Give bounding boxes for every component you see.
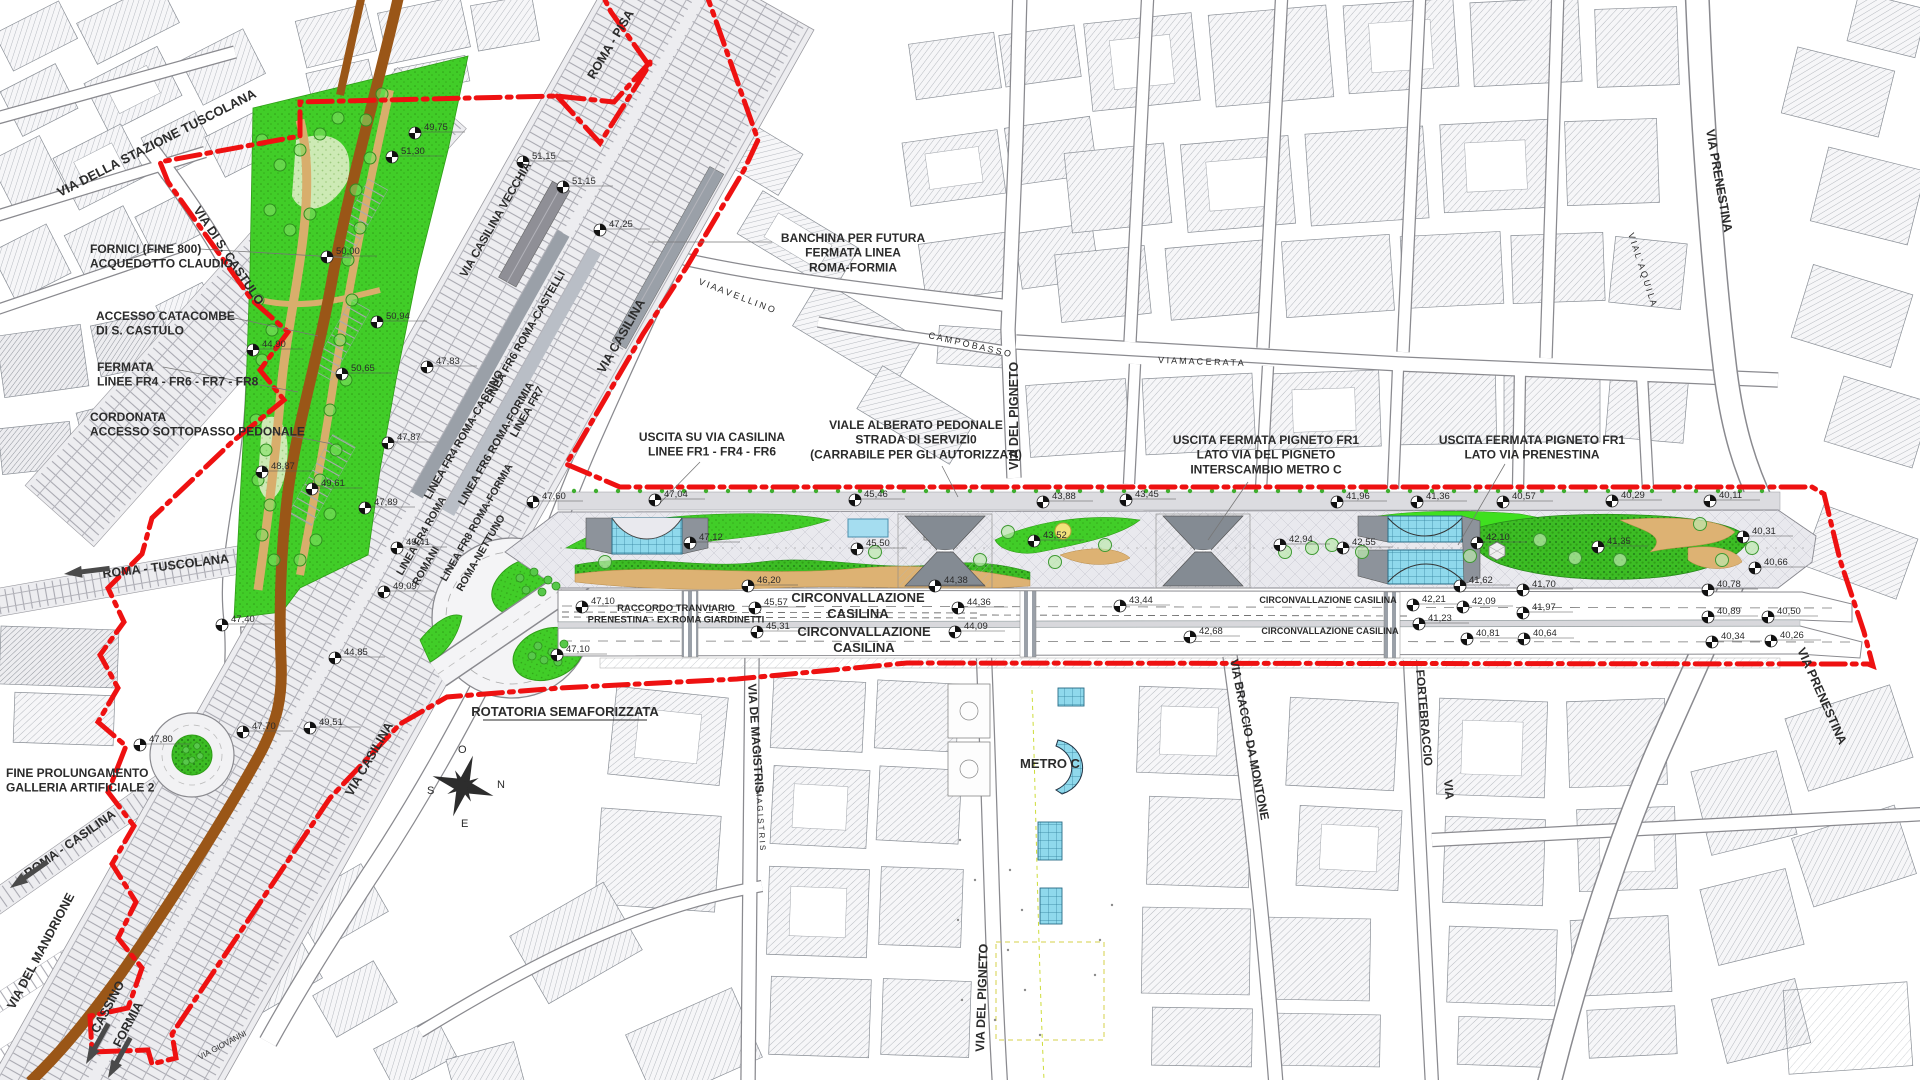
tree-icon: [332, 112, 344, 124]
elevation-value: 43,88: [1052, 491, 1076, 502]
tree-icon: [330, 444, 342, 456]
tree-icon: [274, 159, 286, 171]
city-block: [0, 324, 89, 397]
tree-icon: [350, 184, 362, 196]
elevation-value: 49,61: [321, 478, 345, 489]
tree-icon: [294, 144, 306, 156]
elevation-value: 44,38: [944, 575, 968, 586]
metro-pool-1: [1058, 688, 1084, 706]
label-metro-c: METRO C: [1020, 756, 1081, 771]
elevation-value: 40,11: [1719, 490, 1742, 501]
tree-icon: [197, 753, 203, 759]
elevation-value: 51,30: [401, 146, 425, 157]
city-block: [1141, 907, 1250, 995]
label-uscita-su-via-casilina: USCITA SU VIA CASILINALINEE FR1 - FR4 - …: [639, 430, 786, 459]
elevation-value: 40,78: [1717, 579, 1741, 590]
elevation-value: 42,68: [1199, 626, 1223, 637]
metro-pool-2: [1038, 822, 1062, 860]
elevation-value: 40,50: [1777, 606, 1801, 617]
elevation-value: 40,29: [1621, 490, 1645, 501]
tree-icon: [530, 568, 538, 576]
elevation-value: 47,10: [566, 644, 590, 655]
tree-icon: [1746, 542, 1759, 555]
city-block: [1146, 796, 1251, 888]
elevation-value: 40,89: [1717, 606, 1741, 617]
elevation-value: 47,80: [149, 734, 173, 745]
tree-icon: [534, 642, 542, 650]
elevation-value: 41,35: [1607, 536, 1631, 547]
city-block: [879, 867, 964, 948]
street: [1393, 369, 1398, 489]
tree-icon: [268, 554, 280, 566]
tree-icon: [1049, 556, 1062, 569]
elevation-value: 44,36: [967, 597, 991, 608]
tree-icon: [189, 757, 195, 763]
boulevard-tree-icon: [924, 489, 928, 493]
tree-icon: [260, 444, 272, 456]
elevation-value: 41,36: [1426, 491, 1450, 502]
crosswalk-2: [1020, 591, 1036, 657]
tree-icon: [334, 334, 346, 346]
tree-icon: [294, 554, 306, 566]
elevation-value: 45,57: [764, 597, 788, 608]
elevation-value: 49,51: [319, 717, 343, 728]
city-block: [769, 976, 872, 1057]
pool-rect: [848, 519, 888, 537]
elevation-value: 48,87: [271, 461, 295, 472]
tree-icon: [256, 529, 268, 541]
elevation-value: 42,10: [1486, 532, 1510, 543]
boulevard-tree-icon: [968, 489, 972, 493]
label-compass-o: O: [458, 744, 467, 756]
elevation-value: 44,85: [344, 647, 368, 658]
tree-icon: [552, 582, 560, 590]
elevation-value: 47,60: [542, 491, 566, 502]
tree-icon: [364, 152, 376, 164]
elevation-value: 46,20: [757, 575, 781, 586]
tree-icon: [284, 224, 296, 236]
city-block: [1064, 143, 1172, 233]
city-block: [1152, 1007, 1253, 1067]
tree-icon: [194, 743, 200, 749]
elevation-value: 45,46: [864, 489, 888, 500]
boulevard-tree-icon: [1650, 489, 1654, 493]
label-compass-s: S: [427, 785, 434, 797]
elevation-value: 47,10: [591, 596, 615, 607]
street: [1129, 364, 1135, 484]
boulevard-tree-icon: [594, 489, 598, 493]
tree-icon: [183, 759, 189, 765]
tree-icon: [324, 404, 336, 416]
city-block: [1272, 1013, 1381, 1067]
tree-icon: [264, 204, 276, 216]
elevation-value: 47,87: [397, 432, 421, 443]
city-block: [1400, 231, 1504, 308]
city-block: [1457, 1016, 1557, 1067]
tree-icon: [540, 656, 548, 664]
city-block: [1783, 982, 1913, 1074]
tree-icon: [528, 652, 536, 660]
city-block: [1595, 7, 1680, 88]
elevation-value: 42,09: [1472, 596, 1496, 607]
elevation-value: 42,94: [1289, 534, 1313, 545]
elevation-value: 40,66: [1764, 557, 1788, 568]
label-compass-e: E: [461, 818, 468, 830]
label-via-del-pigneto-nord: VIA DEL PIGNETO: [1007, 362, 1021, 470]
elevation-value: 47,25: [609, 219, 633, 230]
tree-icon: [1614, 554, 1627, 567]
tree-icon: [1534, 534, 1547, 547]
elevation-value: 47,89: [374, 497, 398, 508]
elevation-value: 41,96: [1346, 491, 1370, 502]
elevation-value: 45,31: [766, 621, 790, 632]
hexagon-kiosk: [1489, 542, 1505, 560]
elevation-value: 40,57: [1512, 491, 1536, 502]
boulevard-tree-icon: [1386, 489, 1390, 493]
elevation-value: 43,45: [1135, 489, 1159, 500]
city-block: [770, 678, 866, 753]
city-block: [770, 766, 870, 849]
elevation-value: 41,23: [1428, 613, 1452, 624]
metro-pool-3: [1040, 888, 1062, 924]
city-block: [1440, 119, 1552, 213]
elevation-value: 47,40: [231, 614, 255, 625]
label-uscita-pigneto-lato-pigneto: USCITA FERMATA PIGNETO FR1LATO VIA DEL P…: [1173, 433, 1360, 476]
city-block: [1470, 0, 1582, 87]
tree-icon: [974, 554, 987, 567]
elevation-value: 41,62: [1469, 575, 1493, 586]
elevation-value: 50,94: [386, 311, 410, 322]
masterplan-map: 49,7551,3051,1551,1547,2550,0044,9050,94…: [0, 0, 1920, 1080]
label-uscita-pigneto-lato-prenestina: USCITA FERMATA PIGNETO FR1LATO VIA PRENE…: [1439, 433, 1626, 462]
boulevard-tree-icon: [572, 489, 576, 493]
city-block: [1261, 917, 1370, 1001]
tree-icon: [183, 747, 189, 753]
elevation-value: 40,64: [1533, 628, 1557, 639]
tree-icon: [1326, 539, 1339, 552]
city-block: [766, 866, 869, 957]
city-block: [1026, 379, 1131, 458]
elevation-value: 40,81: [1476, 628, 1500, 639]
city-block: [1565, 118, 1660, 205]
tree-icon: [346, 294, 358, 306]
elevation-value: 44,09: [964, 621, 988, 632]
tree-icon: [264, 499, 276, 511]
tree-icon: [1464, 550, 1477, 563]
city-block: [1286, 697, 1398, 791]
elevation-value: 42,21: [1422, 594, 1446, 605]
mandrione-roundabout: [150, 713, 234, 797]
elevation-value: 50,65: [351, 363, 375, 374]
boulevard-tree-icon: [726, 489, 730, 493]
city-block: [874, 680, 959, 752]
city-block: [1296, 805, 1402, 890]
tree-icon: [1002, 526, 1015, 539]
street: [1518, 372, 1520, 489]
tree-icon: [538, 588, 546, 596]
tree-icon: [599, 556, 612, 569]
elevation-value: 41,70: [1532, 579, 1556, 590]
boulevard-tree-icon: [1188, 489, 1192, 493]
elevation-value: 40,26: [1780, 630, 1804, 641]
elevation-value: 40,31: [1752, 526, 1776, 537]
city-block: [902, 130, 1006, 207]
elevation-value: 44,90: [262, 339, 286, 350]
elevation-value: 49,75: [424, 122, 448, 133]
service-road: [558, 492, 1780, 510]
city-block: [881, 978, 972, 1057]
metro-entrance-bowtie: [1156, 514, 1250, 588]
elevation-value: 43,44: [1129, 595, 1153, 606]
elevation-value: 47,04: [664, 489, 688, 500]
city-block: [1281, 234, 1394, 317]
tree-icon: [1569, 552, 1582, 565]
tree-icon: [324, 508, 336, 520]
tree-icon: [354, 222, 366, 234]
tree-icon: [314, 128, 326, 140]
label-circonvallazione-casilina-small-2: CIRCONVALLAZIONE CASILINA: [1261, 626, 1399, 636]
tree-icon: [1099, 539, 1112, 552]
elevation-value: 47,83: [436, 356, 460, 367]
city-block: [1587, 1006, 1677, 1059]
tree-icon: [522, 586, 530, 594]
label-via-fortebraccio: VIA: [1441, 779, 1457, 800]
boulevard-tree-icon: [1606, 489, 1610, 493]
elevation-value: 51,15: [532, 151, 556, 162]
city-block: [1165, 240, 1271, 320]
city-block: [1447, 926, 1558, 1006]
tree-icon: [516, 574, 524, 582]
label-circonvallazione-casilina-small-1: CIRCONVALLAZIONE CASILINA: [1259, 595, 1397, 605]
tree-icon: [360, 114, 372, 126]
label-fine-prolungamento: FINE PROLUNGAMENTOGALLERIA ARTIFICIALE 2: [6, 766, 155, 795]
elevation-value: 41,97: [1532, 602, 1556, 613]
tree-icon: [544, 576, 552, 584]
tree-icon: [310, 534, 322, 546]
elevation-value: 42,55: [1352, 537, 1376, 548]
elevation-value: 45,50: [866, 538, 890, 549]
city-block: [1511, 232, 1605, 303]
elevation-value: 50,00: [336, 246, 360, 257]
tree-icon: [1694, 518, 1707, 531]
label-rotatoria-semaforizzata: ROTATORIA SEMAFORIZZATA: [471, 704, 659, 719]
elevation-value: 47,70: [252, 721, 276, 732]
elevation-value: 47,12: [699, 532, 723, 543]
elevation-value: 40,34: [1721, 631, 1745, 642]
elevation-value: 43,52: [1043, 530, 1067, 541]
tree-icon: [1716, 554, 1729, 567]
station-skylights-east: [1358, 516, 1480, 584]
label-compass-n: N: [497, 779, 505, 791]
city-block: [1343, 0, 1459, 94]
city-block: [1137, 686, 1242, 776]
tree-icon: [304, 208, 316, 220]
city-block: [909, 32, 1002, 99]
elevation-value: 51,15: [572, 176, 596, 187]
city-block: [608, 686, 729, 785]
street: [1642, 375, 1648, 489]
